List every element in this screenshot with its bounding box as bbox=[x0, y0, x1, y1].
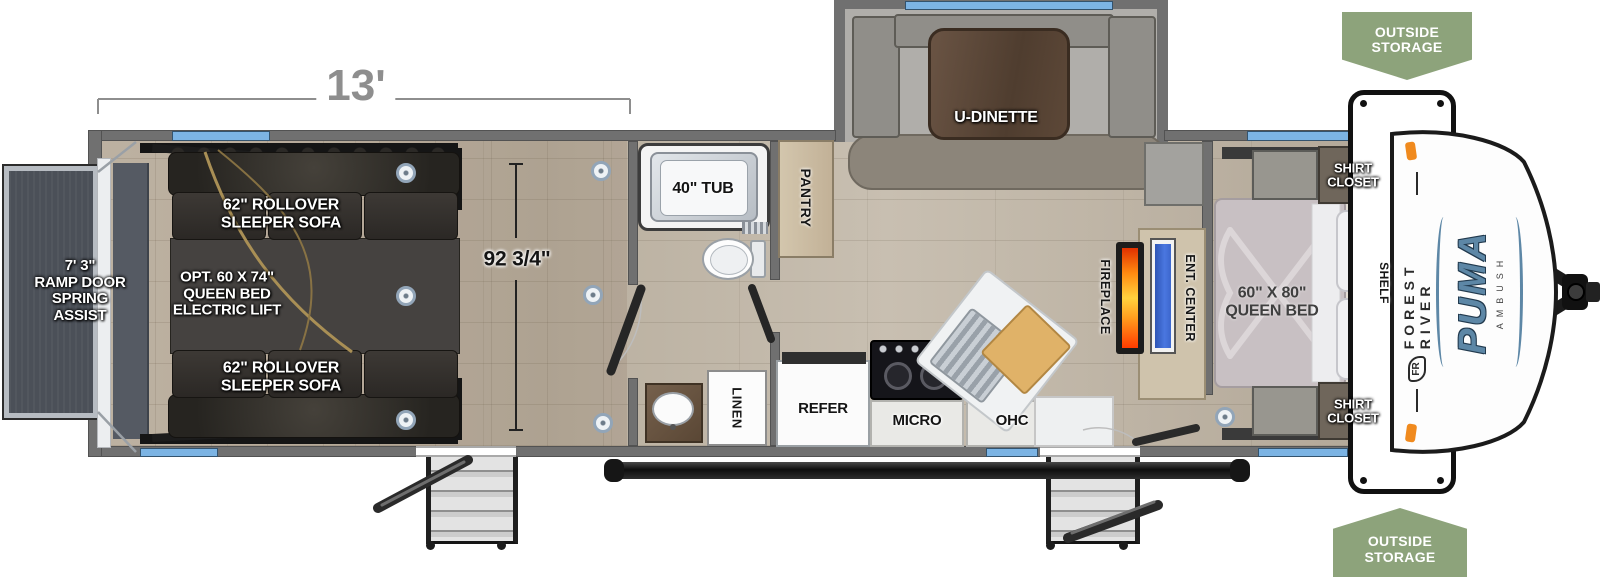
dinette-bench-left bbox=[852, 16, 900, 138]
tie-down-ring bbox=[593, 413, 613, 433]
bath-wall-left-lower bbox=[628, 378, 638, 446]
refer-label: REFER bbox=[798, 401, 848, 418]
sofa-top-seat-3 bbox=[364, 192, 458, 240]
entry-steps-1 bbox=[426, 457, 518, 544]
bath-wall-left-upper bbox=[628, 141, 638, 285]
bath-sink bbox=[652, 392, 694, 426]
nightstand bbox=[1252, 150, 1318, 200]
brand-swoosh bbox=[1508, 217, 1523, 367]
floorplan-diagram: OUTSIDE STORAGE OUTSIDE STORAGE bbox=[0, 0, 1600, 577]
tv-screen bbox=[1155, 244, 1171, 348]
bottom-wall bbox=[88, 446, 1378, 457]
micro-label: MICRO bbox=[893, 413, 942, 430]
shirt-closet-label-top: SHIRT CLOSET bbox=[1327, 162, 1379, 191]
nightstand bbox=[1252, 386, 1318, 436]
outside-storage-badge-bottom: OUTSIDE STORAGE bbox=[1333, 508, 1467, 577]
sleeper-sofa-label-top: 62" ROLLOVER SLEEPER SOFA bbox=[221, 196, 341, 231]
tie-down-ring bbox=[583, 285, 603, 305]
brand-rule bbox=[1416, 389, 1418, 412]
step-wheel bbox=[426, 541, 435, 550]
brand-rule bbox=[1416, 172, 1418, 195]
outside-storage-badge-top: OUTSIDE STORAGE bbox=[1342, 12, 1472, 80]
storage-box-screw bbox=[1360, 100, 1367, 107]
sleeper-sofa-label-bottom: 62" ROLLOVER SLEEPER SOFA bbox=[221, 359, 341, 394]
toilet-seat bbox=[710, 245, 748, 275]
length-dimension-label: 13' bbox=[316, 66, 395, 106]
tie-down-ring bbox=[396, 163, 416, 183]
storage-box-screw bbox=[1437, 477, 1444, 484]
bedroom-bottom-window bbox=[1258, 448, 1348, 457]
sofa-top-back bbox=[168, 152, 460, 196]
tie-down-ring bbox=[591, 161, 611, 181]
dinette-window bbox=[905, 1, 1113, 10]
outside-storage-label: OUTSIDE STORAGE bbox=[1364, 534, 1435, 565]
bathtub-drain bbox=[742, 222, 768, 234]
entry-door-opening-2 bbox=[1040, 446, 1140, 457]
linen-label: LINEN bbox=[730, 387, 745, 429]
stove-burner bbox=[884, 362, 912, 390]
dinette-label: U-DINETTE bbox=[954, 109, 1038, 127]
front-cap-branding: FR FOREST RIVER PUMA AMBUSH bbox=[1337, 172, 1587, 412]
outside-storage-label: OUTSIDE STORAGE bbox=[1371, 25, 1442, 56]
tie-down-ring bbox=[396, 286, 416, 306]
sofa-bottom-seat-3 bbox=[364, 350, 458, 398]
ramp-door-label: 7' 3" RAMP DOOR SPRING ASSIST bbox=[34, 258, 125, 324]
shirt-closet-label-bottom: SHIRT CLOSET bbox=[1327, 398, 1379, 427]
width-dimension-label: 92 3/4" bbox=[484, 247, 551, 270]
brand-make-label: FOREST RIVER bbox=[1401, 202, 1433, 349]
garage-bottom-window bbox=[140, 448, 218, 457]
brand-model-label: PUMA bbox=[1454, 230, 1492, 354]
storage-box-screw bbox=[1437, 100, 1444, 107]
forest-river-logo: FR bbox=[1408, 356, 1426, 381]
entry-door-opening-1 bbox=[416, 446, 516, 457]
brand-make-row: FR FOREST RIVER bbox=[1401, 172, 1433, 412]
tie-down-ring bbox=[396, 410, 416, 430]
garage-top-window bbox=[172, 131, 270, 141]
bedroom-top-window bbox=[1247, 131, 1353, 141]
step-wheel bbox=[1119, 541, 1128, 550]
wall-counter bbox=[1034, 396, 1114, 447]
tie-down-ring bbox=[1215, 407, 1235, 427]
storage-box-screw bbox=[1360, 477, 1367, 484]
step-wheel bbox=[1046, 541, 1055, 550]
kitchen-bottom-window bbox=[986, 448, 1038, 457]
fireplace-flame bbox=[1122, 248, 1138, 348]
pantry-label: PANTRY bbox=[798, 169, 814, 228]
shelf-label: SHELF bbox=[1377, 262, 1391, 304]
refrigerator-top bbox=[782, 352, 866, 364]
queen-bed-label: 60" X 80" QUEEN BED bbox=[1225, 284, 1318, 319]
bedroom-dresser bbox=[1144, 142, 1204, 206]
brand-swoosh bbox=[1436, 217, 1451, 367]
awning-endcap bbox=[604, 459, 624, 482]
tub-label: 40" TUB bbox=[672, 180, 733, 198]
ohc-label: OHC bbox=[996, 413, 1029, 430]
brand-trim-label: AMBUSH bbox=[1495, 255, 1505, 330]
step-wheel bbox=[497, 541, 506, 550]
awning-endcap bbox=[1230, 459, 1250, 482]
dinette-bench-right bbox=[1108, 16, 1156, 138]
dinette-rug bbox=[848, 134, 1166, 190]
fireplace-label: FIREPLACE bbox=[1098, 259, 1112, 334]
sofa-bottom-back bbox=[168, 394, 460, 438]
awning-roller bbox=[612, 462, 1242, 479]
bed-lift-option-label: OPT. 60 X 74" QUEEN BED ELECTRIC LIFT bbox=[173, 269, 281, 319]
bath-faucet bbox=[670, 424, 676, 430]
ent-center-label: ENT. CENTER bbox=[1183, 254, 1197, 341]
